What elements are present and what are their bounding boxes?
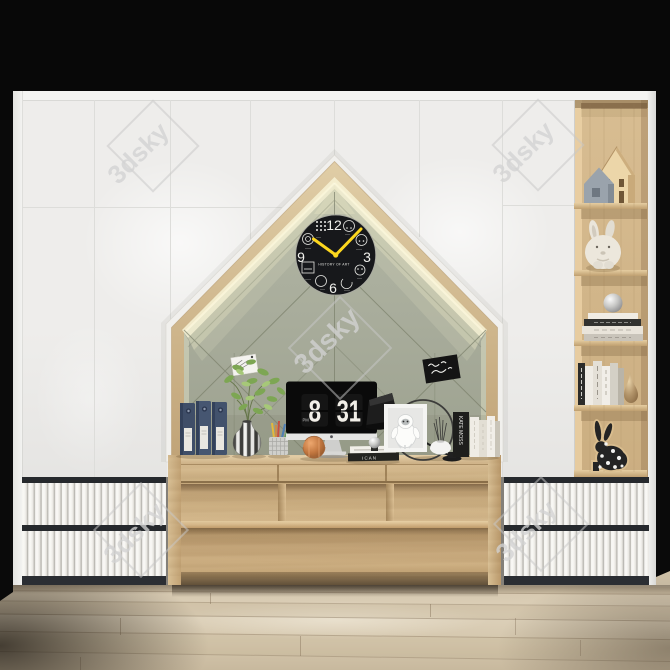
svg-text:3: 3	[363, 249, 371, 265]
svg-text:9: 9	[297, 249, 305, 265]
svg-text:12: 12	[326, 217, 342, 233]
svg-text:KATE MOSS: KATE MOSS	[457, 416, 463, 445]
svg-text:HISTORY OF ART: HISTORY OF ART	[318, 263, 349, 267]
svg-text:PM: PM	[303, 418, 310, 423]
svg-text:I C A N: I C A N	[362, 455, 376, 460]
